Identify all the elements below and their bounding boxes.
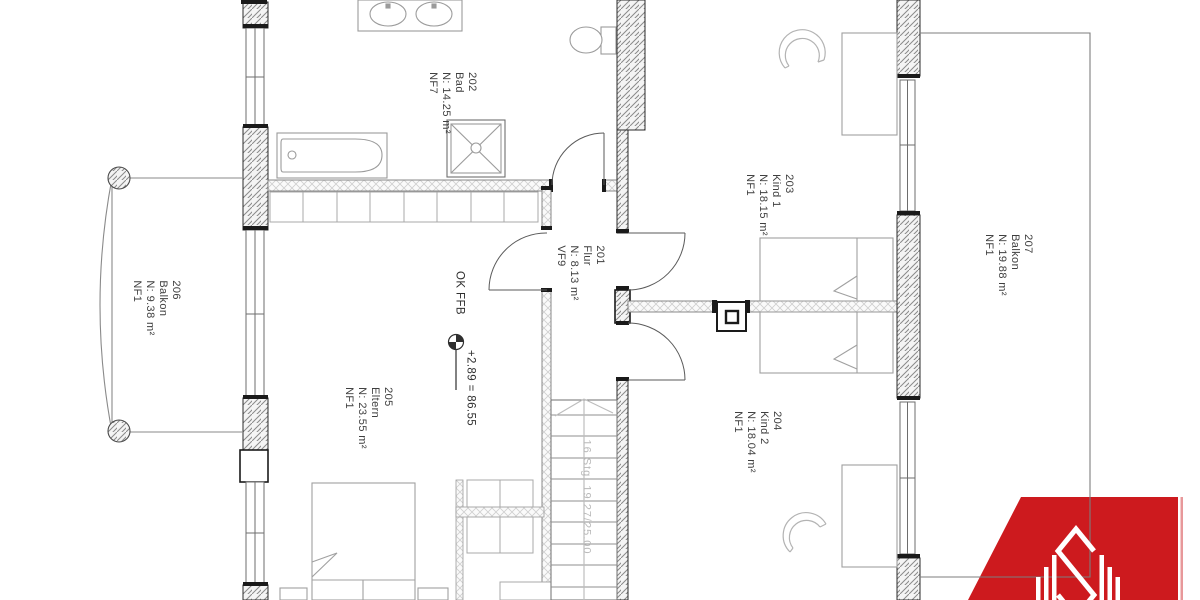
vanity-double-basin xyxy=(358,0,462,31)
desk-kind2 xyxy=(842,465,897,567)
bed-kind1 xyxy=(760,238,893,301)
room-label-eltern: 205 Eltern N: 23.55 m² NF1 xyxy=(342,387,394,449)
room-label-kind1: 203 Kind 1 N: 18.15 m² NF1 xyxy=(743,174,795,236)
door-kind1 xyxy=(628,233,685,290)
room-name: Balkon xyxy=(1008,234,1021,296)
bed-kind2 xyxy=(760,312,893,373)
window-right-2 xyxy=(900,402,915,554)
room-code: VF9 xyxy=(554,245,567,300)
bed-eltern xyxy=(280,483,448,600)
room-code: NF1 xyxy=(130,280,143,335)
room-number: 205 xyxy=(381,387,394,449)
room-area: N: 8.13 m² xyxy=(567,245,580,300)
room-code: NF1 xyxy=(342,387,355,449)
room-number: 203 xyxy=(782,174,795,236)
balcony-207-outline xyxy=(920,33,1090,577)
level-marker-icon xyxy=(449,335,464,391)
window-right-1 xyxy=(900,80,915,211)
wardrobe-row xyxy=(270,192,538,222)
room-code: NF1 xyxy=(743,174,756,236)
room-label-kind2: 204 Kind 2 N: 18.04 m² NF1 xyxy=(731,411,783,473)
room-label-balkon-206: 206 Balkon N: 9.38 m² NF1 xyxy=(130,280,182,335)
wall-bath-south xyxy=(268,179,617,192)
room-name: Bad xyxy=(452,72,465,134)
room-code: NF1 xyxy=(982,234,995,296)
door-bad xyxy=(552,133,604,185)
toilet xyxy=(570,27,616,54)
room-name: Eltern xyxy=(368,387,381,449)
room-name: Kind 2 xyxy=(757,411,770,473)
room-area: N: 9.38 m² xyxy=(143,280,156,335)
floor-plan-canvas: 201 Flur N: 8.13 m² VF9 202 Bad N: 14.25… xyxy=(0,0,1200,600)
room-code: NF1 xyxy=(731,411,744,473)
chair-kind2 xyxy=(783,513,826,552)
room-label-balkon-207: 207 Balkon N: 19.88 m² NF1 xyxy=(982,234,1034,296)
window-left-1 xyxy=(246,28,264,127)
room-name: Balkon xyxy=(156,280,169,335)
room-area: N: 19.88 m² xyxy=(995,234,1008,296)
room-area: N: 18.04 m² xyxy=(744,411,757,473)
room-area: N: 18.15 m² xyxy=(756,174,769,236)
room-number: 201 xyxy=(593,245,606,300)
room-number: 204 xyxy=(770,411,783,473)
window-left-2 xyxy=(246,230,264,398)
room-name: Kind 1 xyxy=(769,174,782,236)
chimney xyxy=(717,302,746,331)
door-kind2 xyxy=(628,323,685,380)
exterior-wall-left xyxy=(240,0,268,600)
level-note-label: OK FFB xyxy=(453,271,466,315)
stair-note: 16 Stg. 19.27/25.00 xyxy=(580,439,593,554)
bathtub xyxy=(277,133,387,178)
room-code: NF7 xyxy=(426,72,439,134)
room-name: Flur xyxy=(580,245,593,300)
desk-kind1 xyxy=(842,33,897,135)
chair-kind1 xyxy=(779,30,825,68)
exterior-wall-right xyxy=(897,0,920,600)
room-area: N: 23.55 m² xyxy=(355,387,368,449)
wall-flur-east xyxy=(615,0,645,600)
door-eltern xyxy=(489,233,547,290)
wall-flur-west xyxy=(541,186,552,600)
room-number: 202 xyxy=(465,72,478,134)
room-number: 207 xyxy=(1021,234,1034,296)
level-note-value: +2.89 = 86.55 xyxy=(464,350,477,426)
room-area: N: 14.25 m² xyxy=(439,72,452,134)
room-label-bad: 202 Bad N: 14.25 m² NF7 xyxy=(426,72,478,134)
window-left-3 xyxy=(246,482,264,585)
company-logo xyxy=(968,497,1183,600)
room-number: 206 xyxy=(169,280,182,335)
wall-kind-divider xyxy=(628,300,897,313)
room-label-flur: 201 Flur N: 8.13 m² VF9 xyxy=(554,245,606,300)
